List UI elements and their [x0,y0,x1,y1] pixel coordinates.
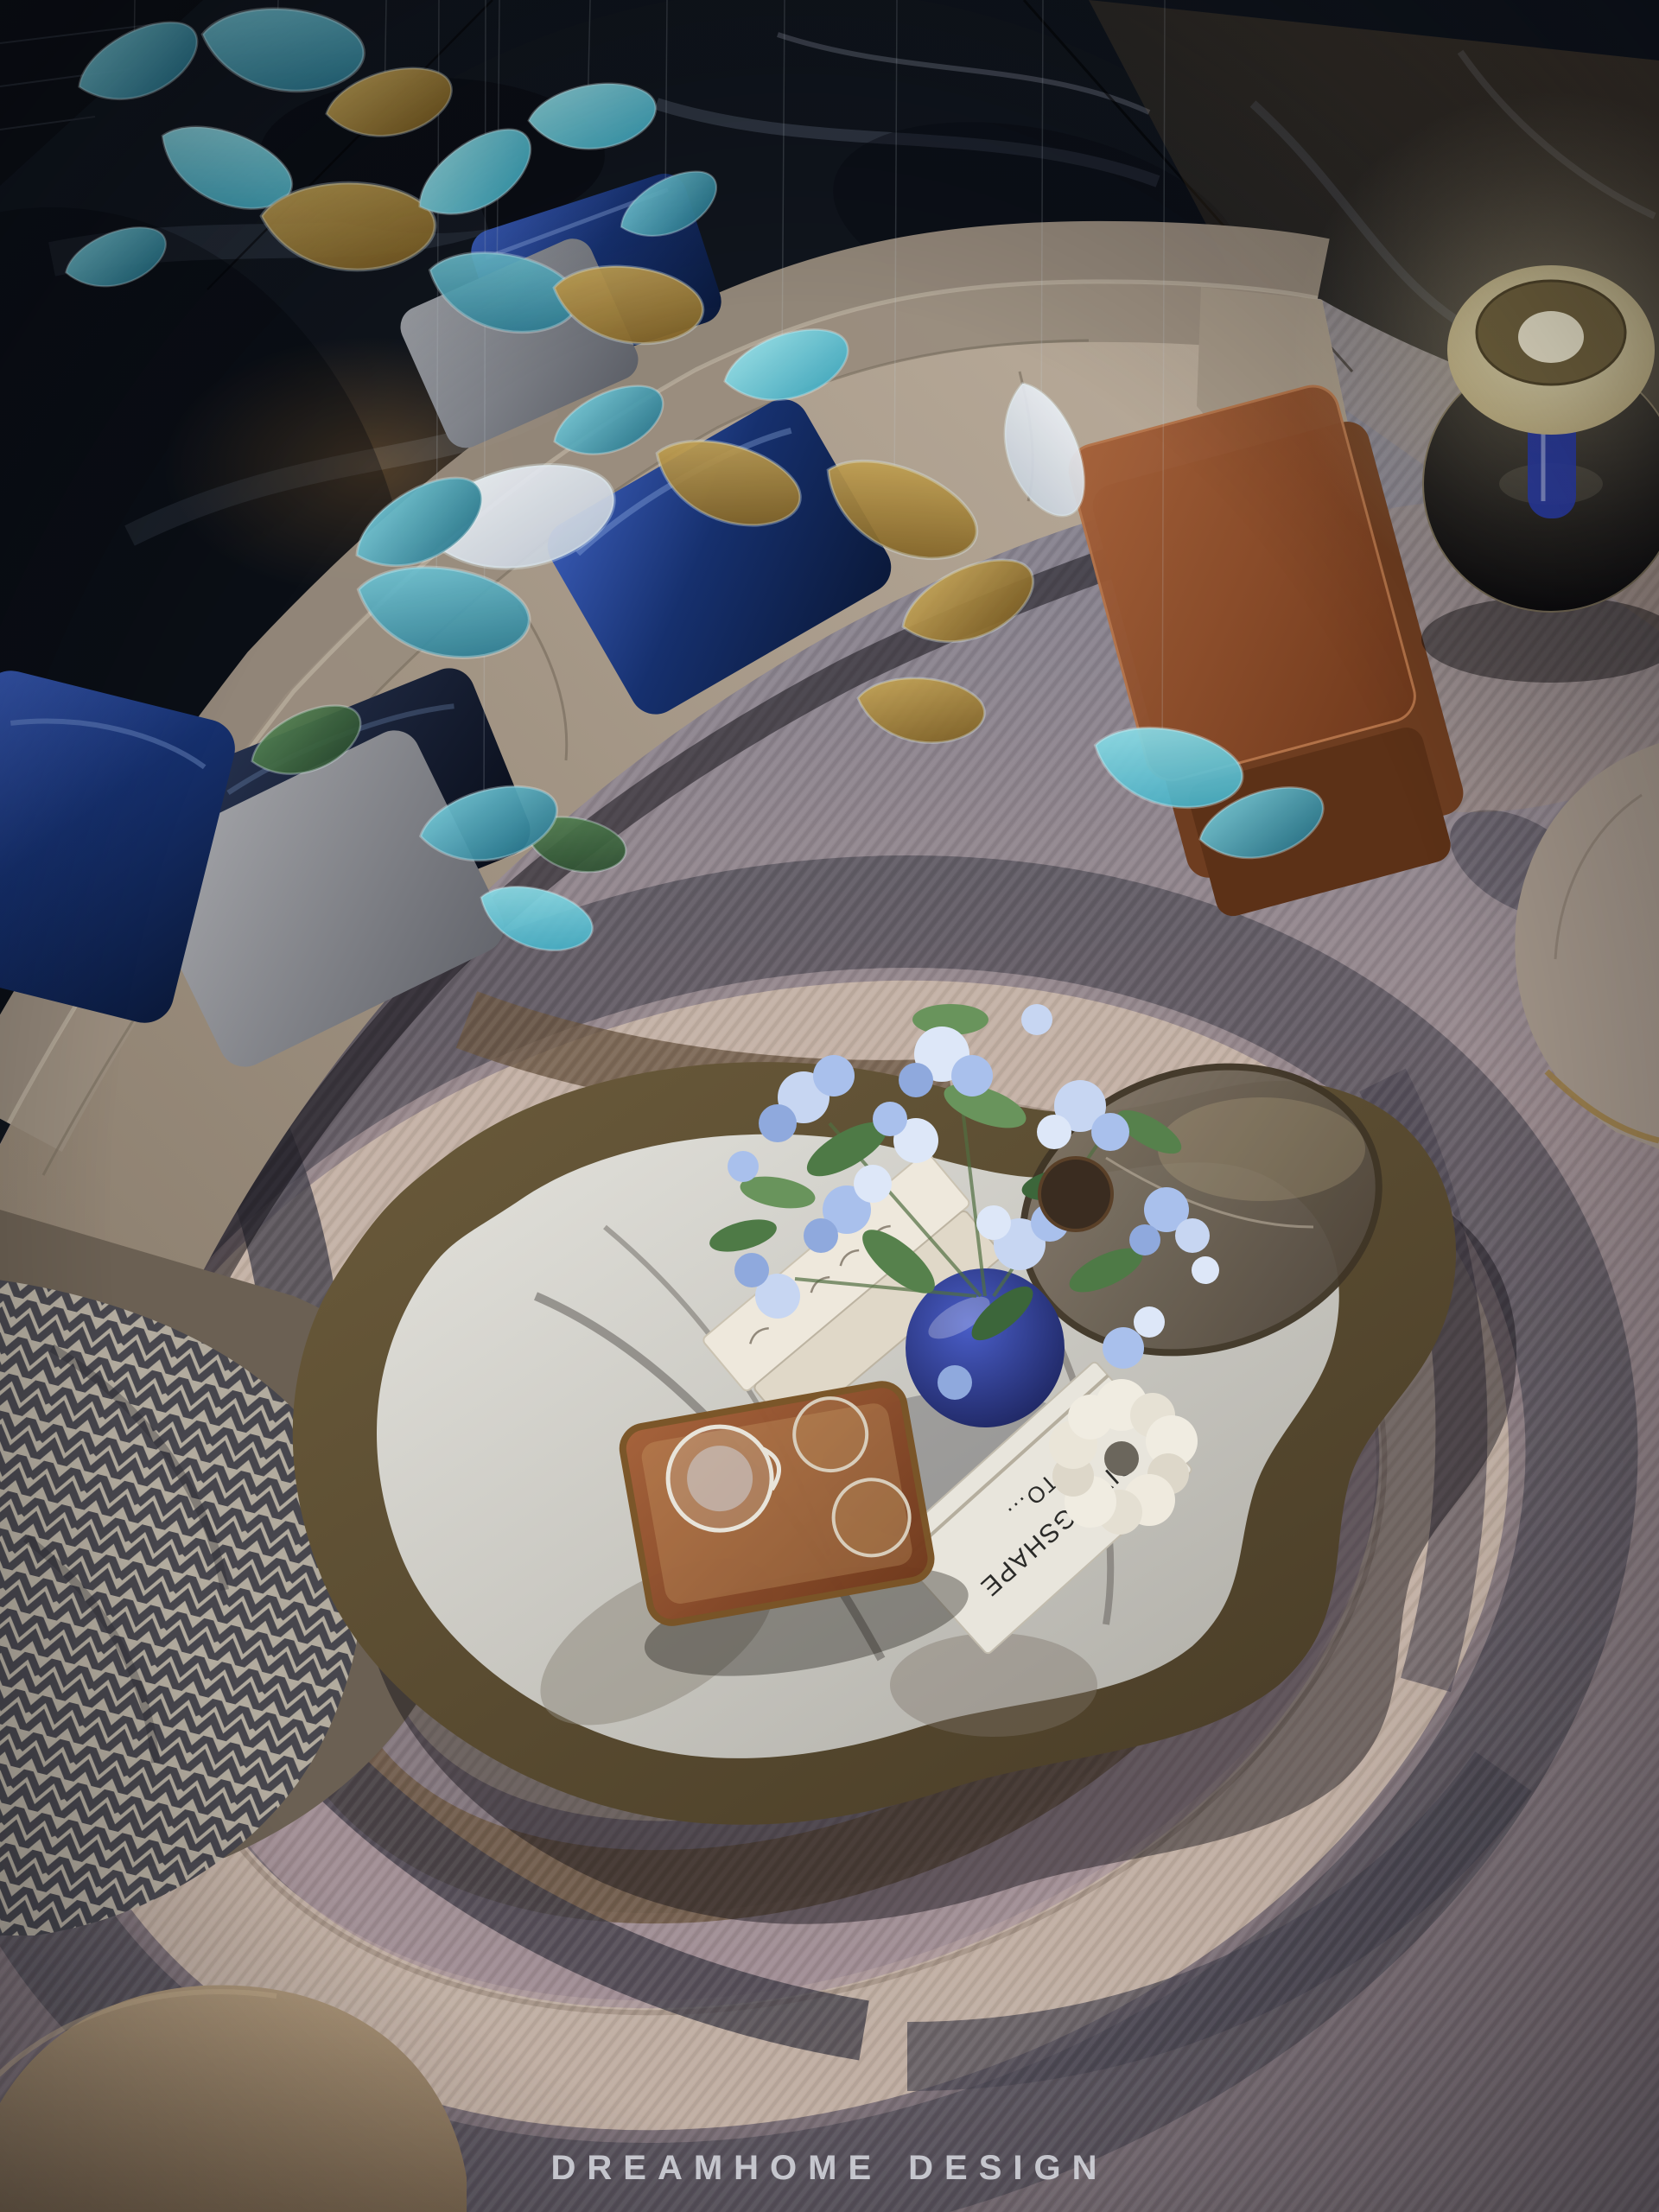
watermark-brand-left: DREAMHOME [550,2149,882,2188]
interior-render-photo: GIVINGSHAPE TO... DREAMHOME DESIGN [0,0,1659,2212]
scene-canvas: GIVINGSHAPE TO... [0,0,1659,2212]
vignette-overlay [0,0,1659,2212]
watermark: DREAMHOME DESIGN [550,2149,1108,2188]
watermark-brand-right: DESIGN [908,2149,1108,2188]
